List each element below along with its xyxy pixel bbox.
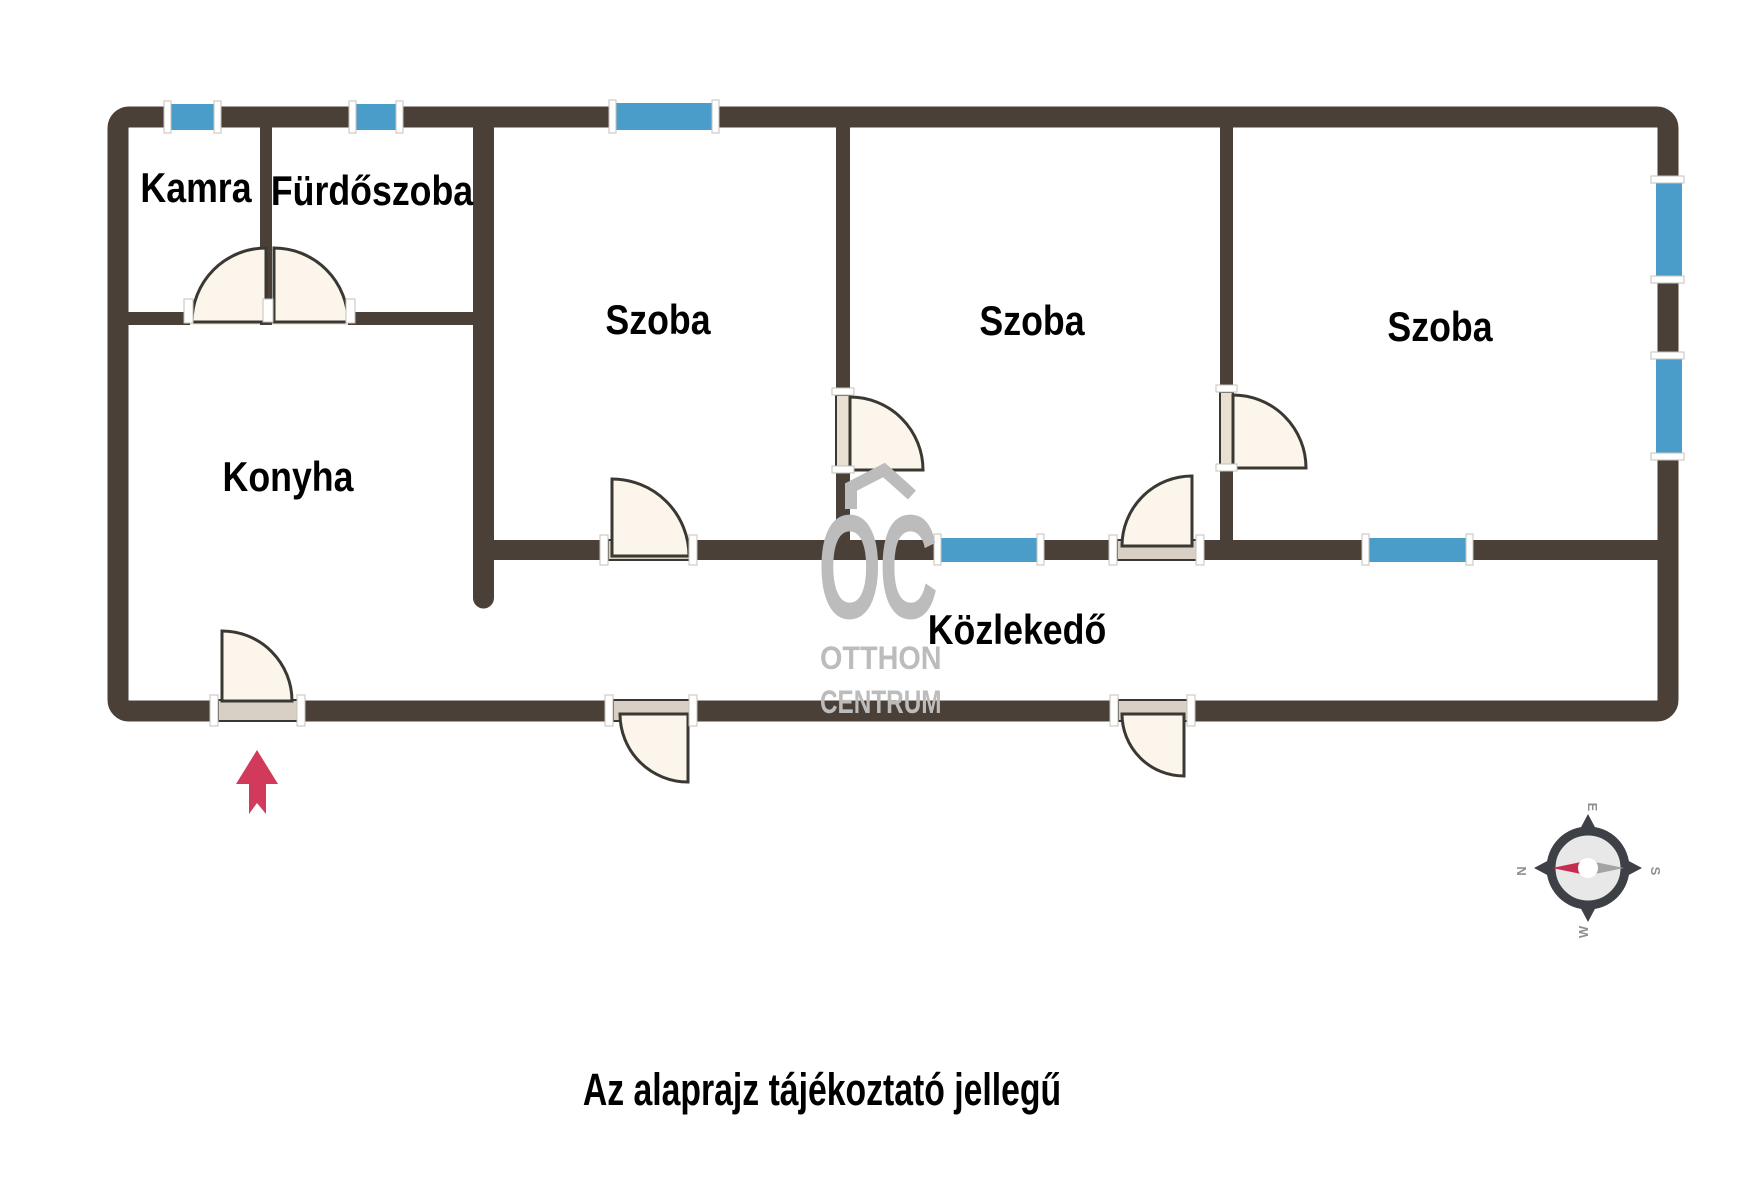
door-opening (218, 700, 298, 721)
interior-wall (348, 312, 473, 325)
room-label-kamra: Kamra (140, 164, 251, 212)
room-label-szoba-2: Szoba (979, 297, 1084, 345)
entrance-arrow-icon (236, 750, 278, 814)
door-swing-exterior-1 (620, 714, 688, 782)
interior-wall (128, 312, 190, 325)
door-opening (836, 395, 850, 470)
compass-icon: E S W N (1514, 803, 1663, 938)
interior-wall (1220, 127, 1233, 392)
door-swing-szoba2-left (850, 397, 923, 470)
compass-hub (1578, 858, 1598, 878)
interior-wall (1220, 468, 1233, 540)
corridor-wall (1467, 540, 1658, 560)
room-label-kozlekedo: Közlekedő (928, 606, 1107, 654)
door-swing-entrance (222, 631, 292, 701)
corridor-wall (494, 540, 608, 560)
window (355, 104, 397, 130)
interior-wall (473, 108, 494, 609)
window (170, 104, 215, 130)
window (940, 538, 1038, 562)
floor-plan-drawing: OC OTTHON CENTRUM E S W N (0, 0, 1760, 1180)
door-swing-exterior-2 (1122, 714, 1184, 776)
floor-plan: OC OTTHON CENTRUM E S W N Kamra Fürdőszo… (0, 0, 1760, 1180)
compass-label-south: S (1648, 867, 1663, 876)
door-swing-szoba2-right (1122, 476, 1192, 546)
door-swing-furdoszoba (274, 248, 348, 322)
room-label-szoba-3: Szoba (1387, 303, 1492, 351)
window (1656, 357, 1682, 455)
room-label-konyha: Konyha (223, 453, 354, 501)
compass-label-north: N (1514, 866, 1529, 875)
compass-label-west: W (1576, 925, 1591, 938)
door-swing-szoba3 (1233, 395, 1306, 468)
window (1368, 538, 1467, 562)
watermark-logo-text: OC (818, 485, 936, 650)
plan-caption: Az alaprajz tájékoztató jellegű (583, 1064, 1061, 1116)
interior-wall (836, 127, 850, 395)
window (615, 103, 713, 130)
door-opening (1220, 392, 1233, 468)
watermark-line2: CENTRUM (820, 685, 942, 721)
door-swing-szoba1 (612, 479, 689, 556)
window (1656, 181, 1682, 278)
room-label-furdoszoba: Fürdőszoba (271, 167, 473, 215)
room-label-szoba-1: Szoba (605, 296, 710, 344)
corridor-wall (1197, 540, 1368, 560)
door-swing-kamra (192, 248, 266, 322)
compass-label-east: E (1585, 803, 1600, 812)
watermark-line1: OTTHON (820, 641, 942, 677)
corridor-wall (1040, 540, 1117, 560)
watermark-logo: OC OTTHON CENTRUM (818, 470, 941, 721)
